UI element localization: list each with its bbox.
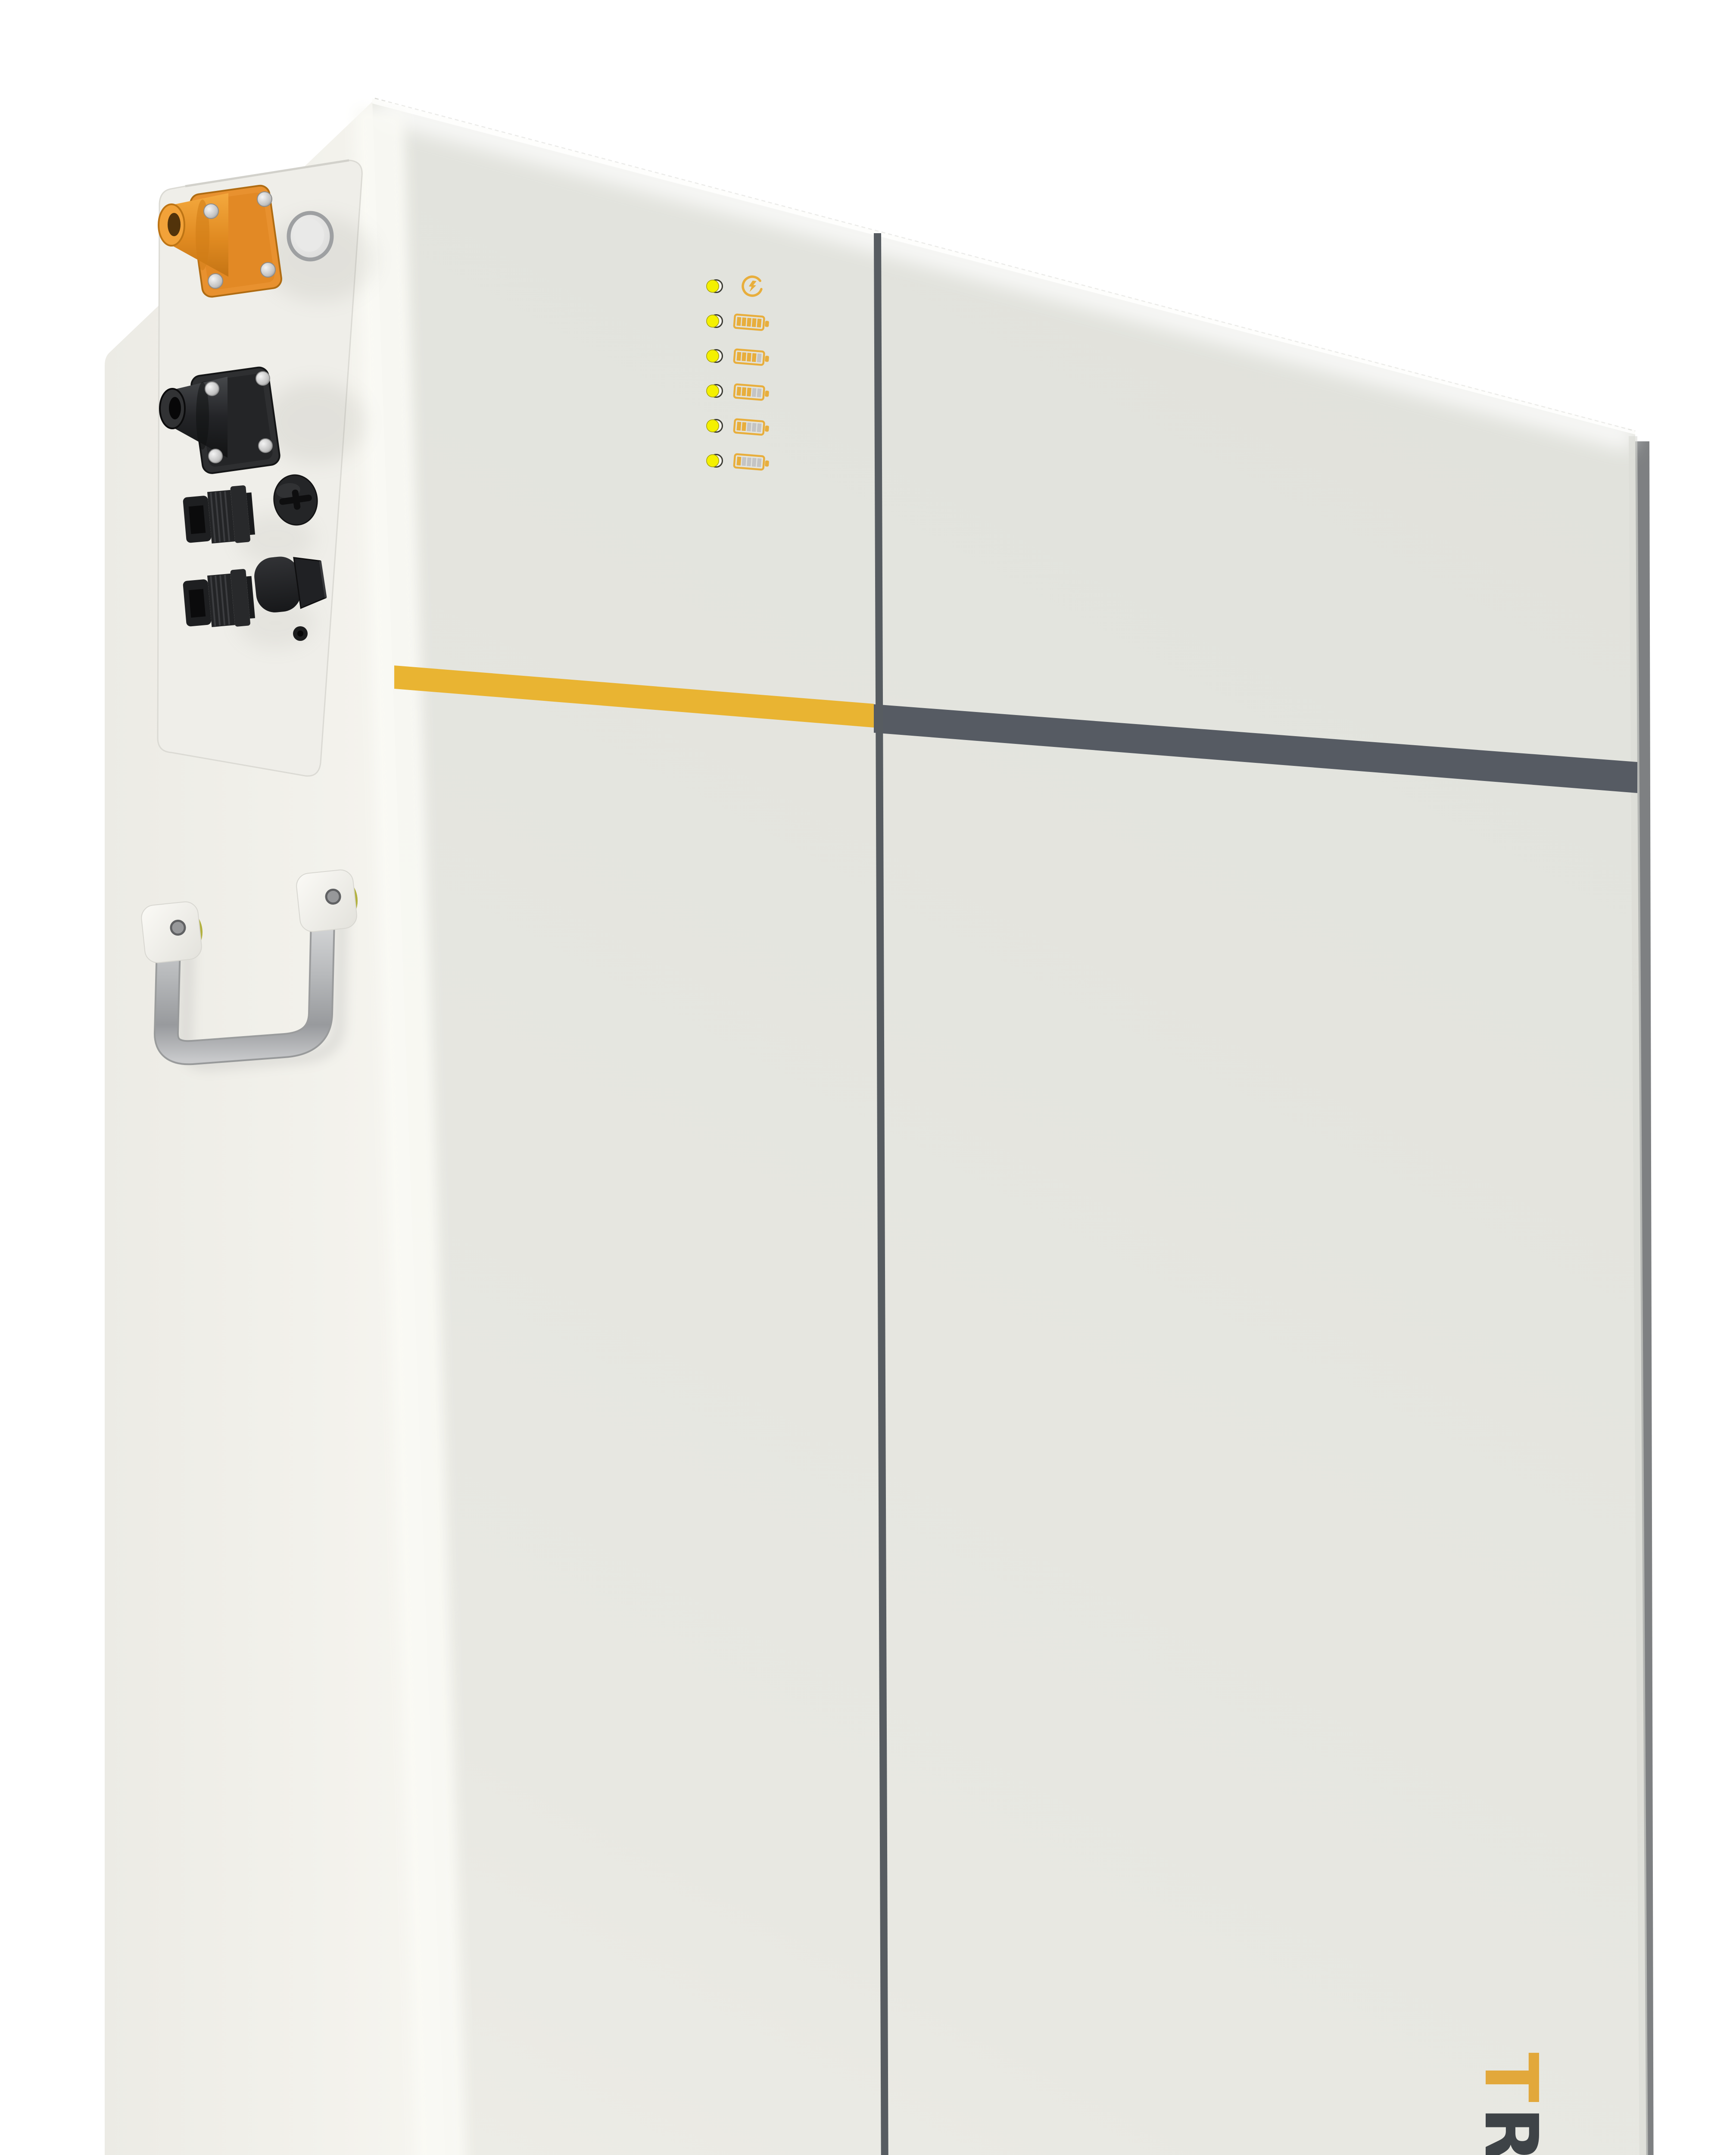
logo-name-rest: RIPLE (1468, 2107, 1553, 2155)
battery-segment (736, 317, 741, 326)
status-led (707, 455, 719, 467)
status-led (707, 280, 719, 292)
battery-segment (747, 457, 751, 466)
logo-triple: TRIPLE (1468, 2052, 1553, 2155)
battery-cabinet: TRIPLE POWER (105, 98, 1649, 2155)
rj45-port (189, 505, 206, 534)
battery-segment (747, 387, 751, 397)
battery-segment (752, 318, 757, 327)
battery-segment (752, 388, 757, 397)
battery-segment (736, 387, 741, 396)
battery-segment (752, 353, 757, 362)
connector-opening (168, 213, 181, 236)
front-face (372, 102, 1649, 2155)
battery-segment (757, 423, 761, 432)
battery-segment (742, 457, 746, 466)
status-led (707, 385, 719, 397)
status-led (707, 420, 719, 432)
battery-segment (742, 352, 746, 361)
handle-bracket-right (295, 868, 358, 933)
battery-segment (752, 458, 757, 467)
rj45-port (189, 589, 206, 618)
round-metal-stud (289, 213, 332, 259)
battery-segment (742, 317, 746, 326)
status-led (707, 350, 719, 362)
logo-letter-accent: T (1468, 2052, 1553, 2107)
battery-segment (757, 319, 761, 328)
battery-segment (757, 388, 761, 397)
product-render: TRIPLE POWER (0, 0, 1736, 2155)
battery-segment (736, 456, 741, 465)
battery-segment (752, 423, 757, 432)
battery-segment (757, 458, 761, 467)
battery-segment (742, 387, 746, 396)
battery-segment (747, 422, 751, 431)
handle-bracket-left (140, 900, 203, 964)
status-led (707, 315, 719, 327)
battery-segment (742, 422, 746, 431)
battery-segment (747, 318, 751, 327)
battery-segment (736, 352, 741, 361)
battery-segment (747, 353, 751, 362)
battery-segment (736, 422, 741, 431)
battery-segment (757, 353, 761, 362)
vent-grommet (293, 626, 308, 641)
